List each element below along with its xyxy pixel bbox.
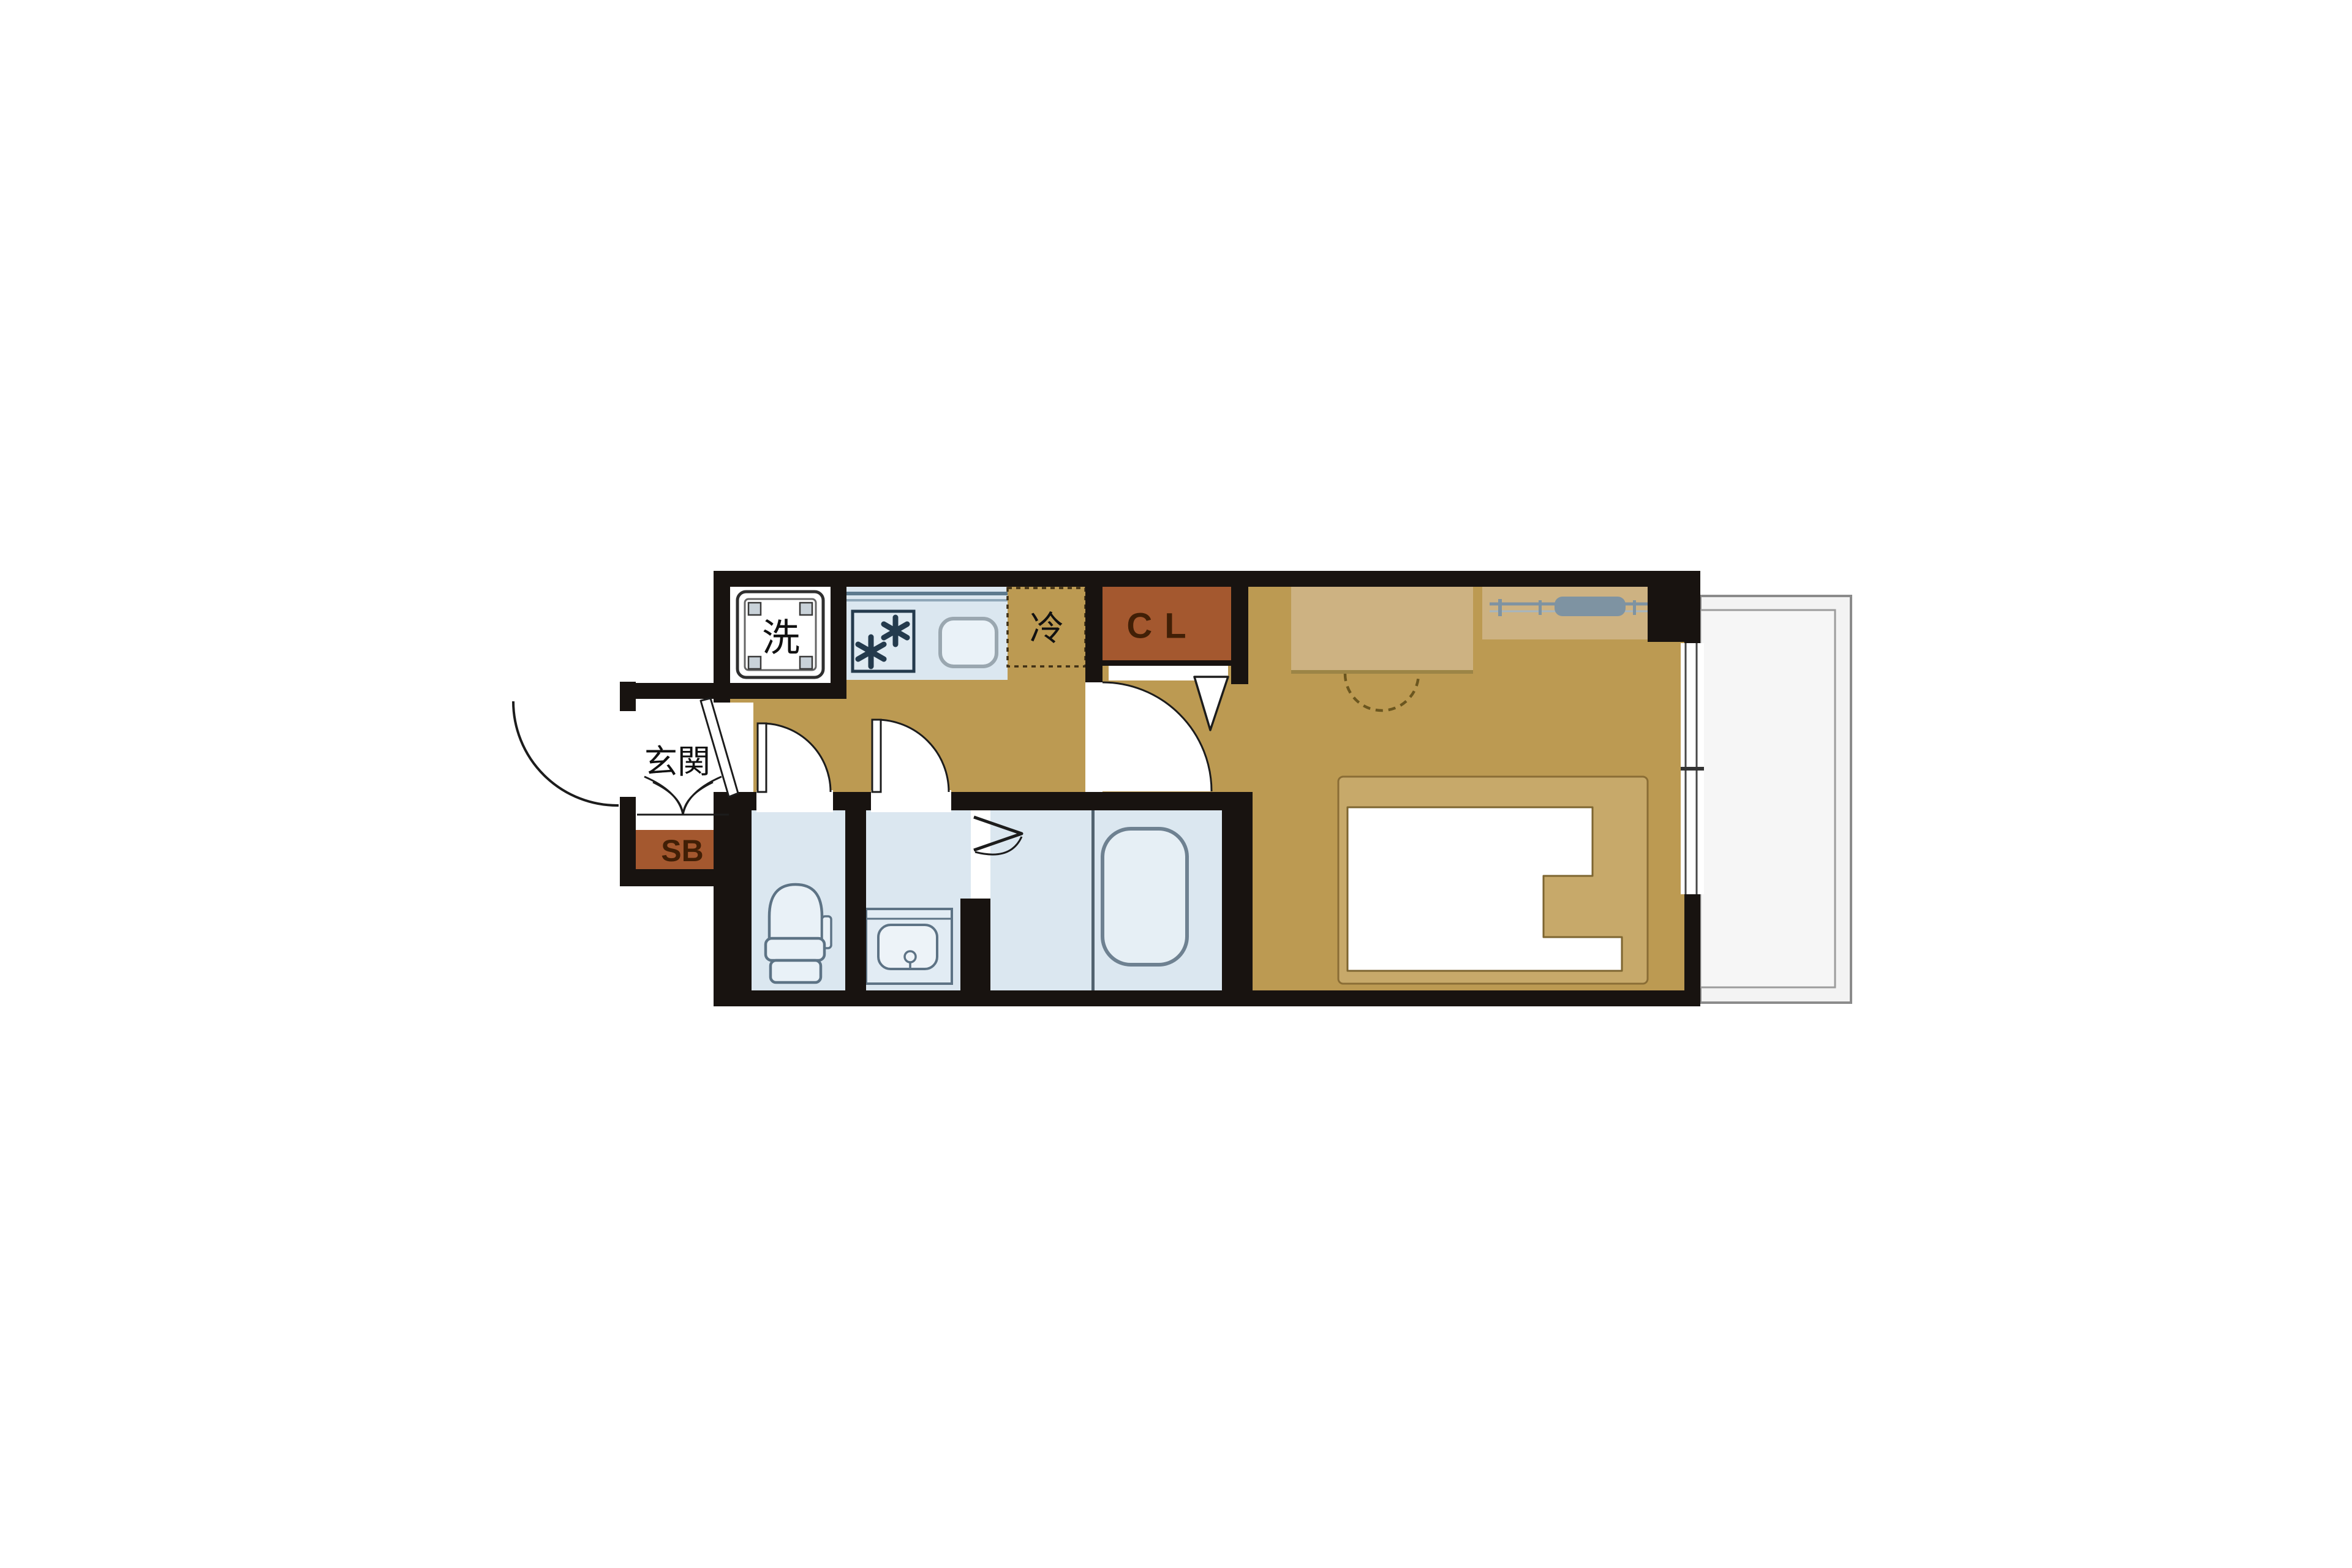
floor-plan-drawing: 洗 冷 CL 玄関 SB (0, 0, 2352, 1568)
floor-plan-page: 洗 冷 CL 玄関 SB (0, 0, 2352, 1568)
counter-back-line2 (845, 599, 1008, 601)
desk-edge-line (1291, 670, 1473, 674)
wall-top (714, 571, 1700, 587)
vanity-sink-icon (866, 909, 952, 984)
balcony-inner-line (1700, 610, 1835, 987)
toilet-door-leaf (758, 723, 766, 792)
label-entrance: 玄関 (644, 744, 710, 780)
kitchen-sink-icon (940, 619, 997, 666)
wall-bottom (714, 990, 1700, 1006)
closet-front-line (1102, 660, 1232, 666)
wall-closet-right (1231, 571, 1248, 684)
stove-icon (853, 611, 914, 671)
wall-washroom-bath-lower (960, 899, 990, 990)
bathtub-icon (1102, 829, 1187, 965)
bath-divider-line (1091, 810, 1095, 990)
counter-back-line (845, 592, 1008, 595)
wall-bath-mainroom (1222, 792, 1253, 990)
genkan-wall-left-upper (620, 682, 636, 711)
label-refrigerator: 冷 (1030, 609, 1064, 648)
wall-corridor-room-divider (1085, 571, 1102, 682)
window-center-tick (1681, 767, 1704, 771)
label-closet: CL (1126, 606, 1198, 646)
wall-toilet-washroom (845, 810, 866, 990)
washroom-door-leaf (872, 720, 881, 792)
label-washing-machine: 洗 (762, 617, 800, 660)
corridor-room-passage (1085, 682, 1102, 792)
entrance-door-arc (513, 701, 619, 805)
window (1681, 643, 1704, 894)
pillar-top-right (1648, 571, 1700, 642)
wall-left-upper (714, 571, 730, 703)
wall-laundry-right (831, 571, 846, 687)
desk-counter (1291, 587, 1473, 674)
wall-laundry-bottom-genkan-top (620, 683, 846, 699)
toilet-door-opening (756, 790, 833, 812)
label-shoe-box: SB (661, 834, 703, 868)
washroom-door-opening (871, 790, 951, 812)
wall-toilet-left-block (714, 792, 752, 1006)
genkan-wall-bottom (620, 869, 730, 886)
